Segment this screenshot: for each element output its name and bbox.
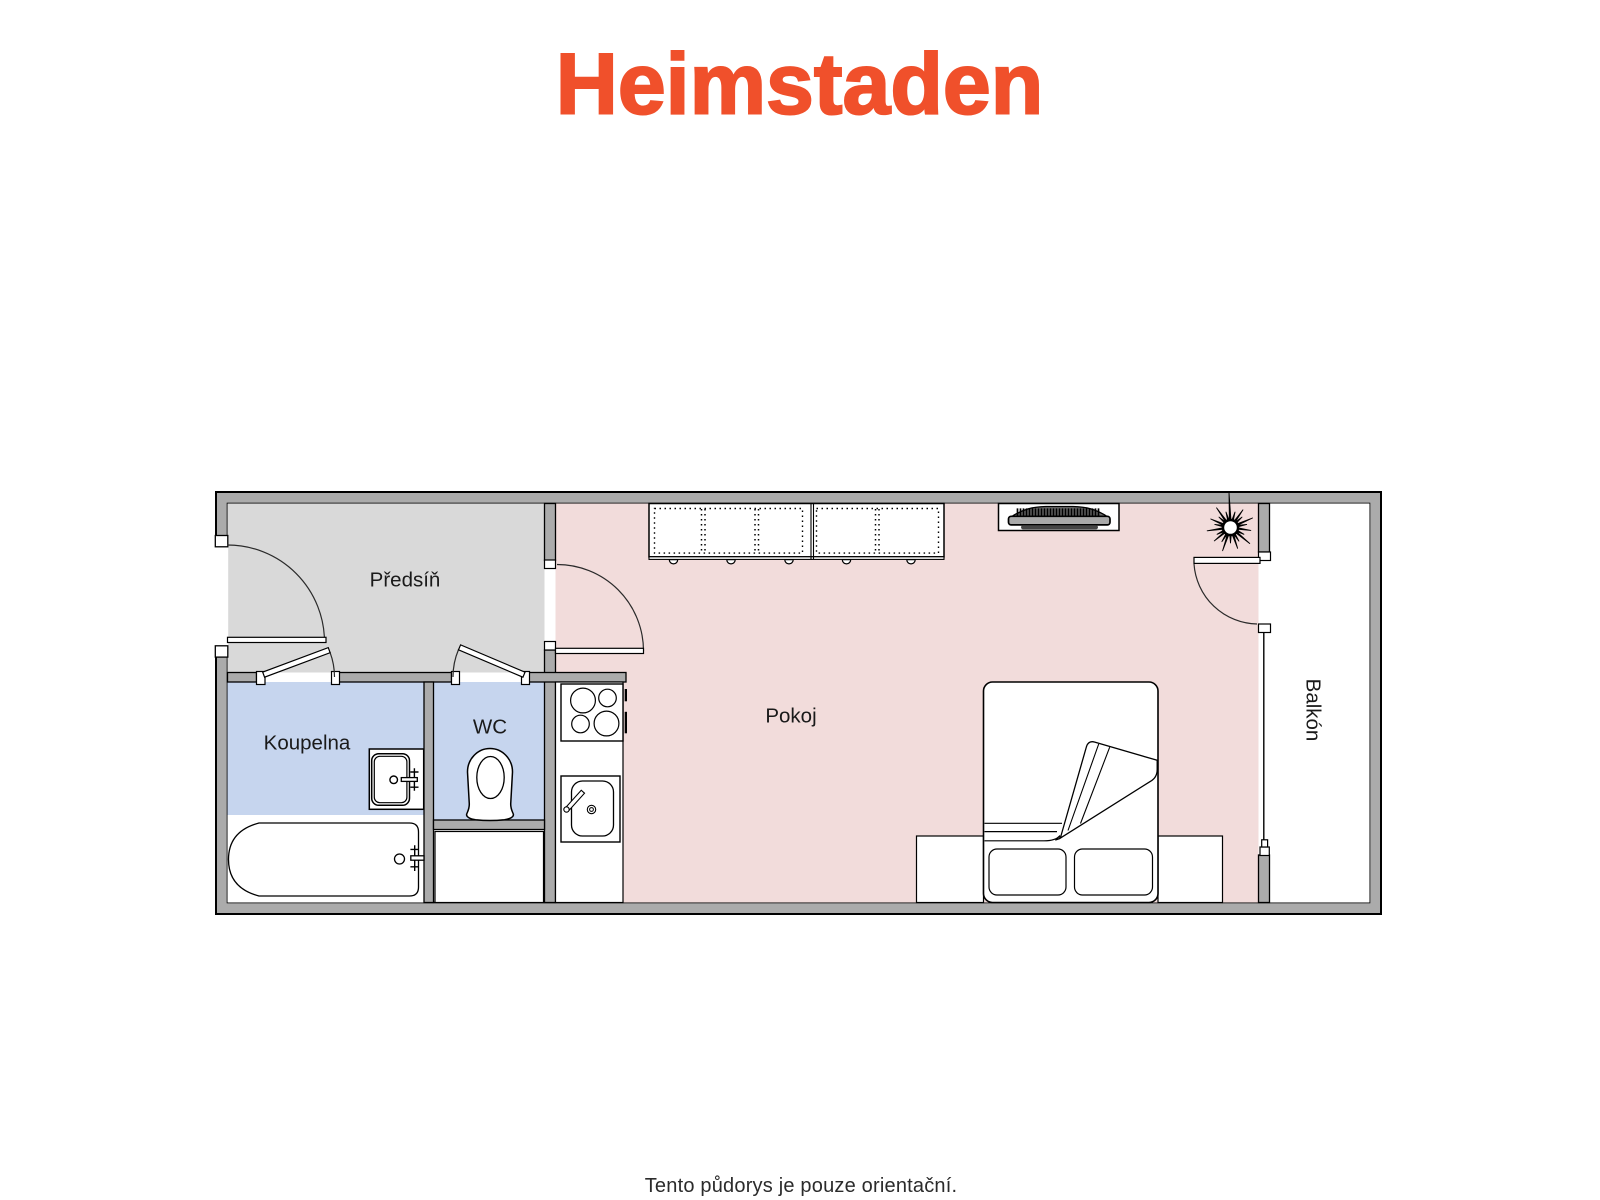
svg-text:Koupelna: Koupelna [264,732,351,755]
svg-text:Balkón: Balkón [1302,679,1325,742]
svg-text:WC: WC [473,716,507,739]
svg-text:Předsíň: Předsíň [370,569,441,592]
svg-text:Tento půdorys je pouze orienta: Tento půdorys je pouze orientační. [645,1175,958,1197]
svg-text:Pokoj: Pokoj [765,705,816,728]
svg-text:Heimstaden: Heimstaden [556,37,1044,133]
